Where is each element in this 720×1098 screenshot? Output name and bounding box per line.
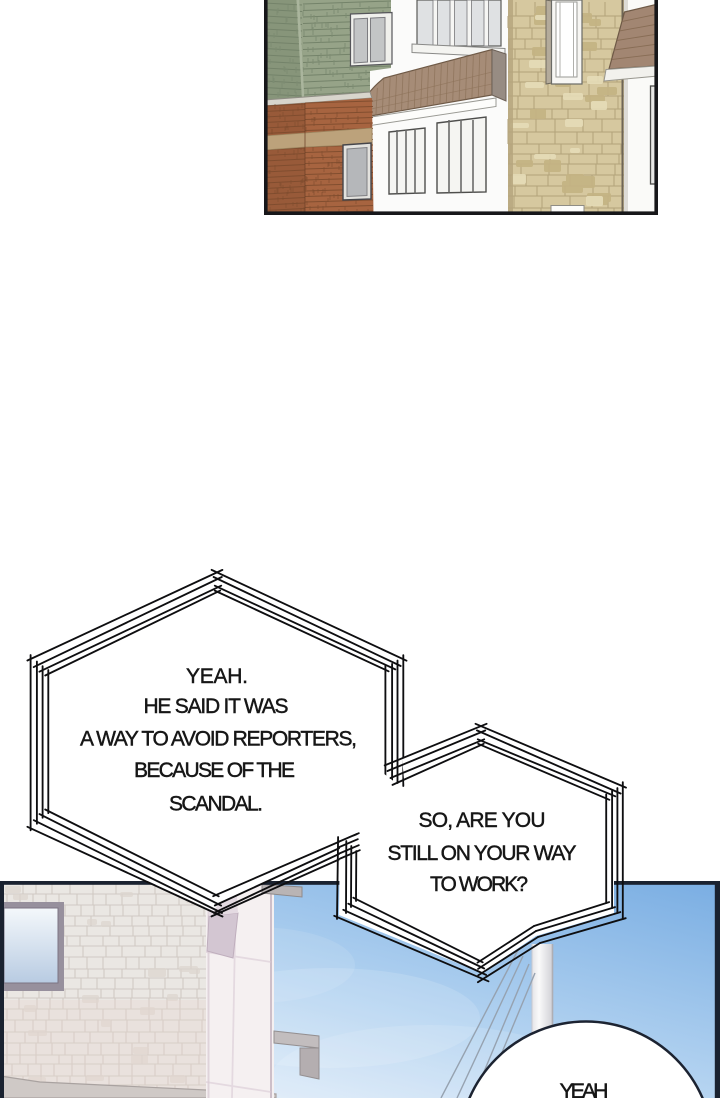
svg-text:SO, ARE YOU: SO, ARE YOU — [419, 809, 546, 832]
svg-text:YEAH.: YEAH. — [186, 665, 248, 688]
svg-text:TO WORK?: TO WORK? — [430, 873, 528, 896]
svg-text:HE SAID IT WAS: HE SAID IT WAS — [144, 695, 289, 718]
svg-text:SCANDAL.: SCANDAL. — [169, 793, 263, 816]
svg-text:STILL ON YOUR WAY: STILL ON YOUR WAY — [388, 842, 577, 865]
svg-text:YEAH: YEAH — [560, 1079, 609, 1098]
svg-text:BECAUSE OF THE: BECAUSE OF THE — [134, 759, 295, 782]
svg-text:A WAY TO AVOID REPORTERS,: A WAY TO AVOID REPORTERS, — [80, 728, 357, 751]
